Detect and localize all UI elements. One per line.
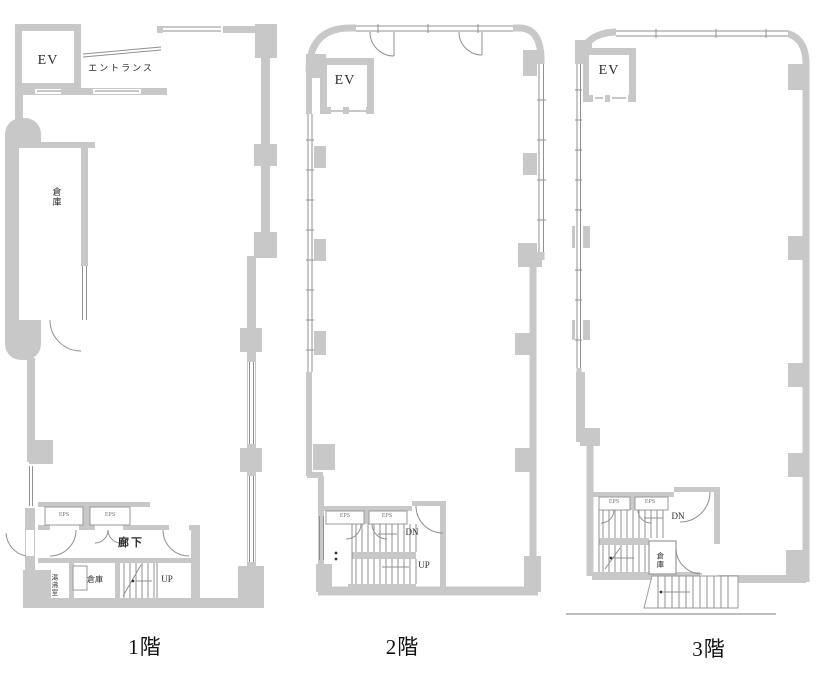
floor3-ev-label: EV — [591, 64, 627, 79]
floor1-up-label: UP — [154, 575, 180, 584]
floor3-storage-label: 倉庫 — [656, 546, 664, 574]
floor1-entrance-label: エントランス — [79, 64, 163, 73]
floor2-eps-right-label: EPS — [369, 513, 405, 519]
floorplan-sheet: EV エントランス 倉庫 EPS EPS 廊下 湯沸室 倉庫 UP — [0, 0, 834, 679]
floor1-plan: EV エントランス 倉庫 EPS EPS 廊下 湯沸室 倉庫 UP — [5, 10, 295, 622]
floor2-eps-left-label: EPS — [327, 513, 363, 519]
floor3-stair-dot — [610, 557, 613, 560]
floor2-plan: EV EPS EPS DN UP — [298, 10, 563, 622]
floor2-ev-label: EV — [327, 74, 363, 89]
floor1-storage-label: 倉庫 — [77, 576, 113, 584]
floor1-stair-dot — [132, 580, 135, 583]
floor2-stair-dots — [335, 552, 338, 561]
floor1-caption: 1階 — [60, 631, 230, 661]
floor1-eps-right-label: EPS — [92, 512, 128, 518]
floor3-plan: EV EPS EPS DN 倉庫 — [566, 10, 834, 626]
floor2-up-label: UP — [411, 561, 437, 570]
floor1-ev-label: EV — [30, 54, 66, 69]
floor3-caption: 3階 — [625, 633, 793, 663]
floor1-side-storage-label: 倉庫 — [51, 174, 60, 220]
floor3-eps-left-label: EPS — [597, 499, 631, 505]
floor2-caption: 2階 — [320, 631, 485, 661]
floor3-exterior-stairs — [644, 576, 738, 608]
floor1-drawing — [5, 10, 295, 622]
floor2-drawing — [298, 10, 563, 622]
floor3-dn-label: DN — [665, 512, 691, 521]
floor2-dn-label: DN — [399, 528, 425, 537]
floor3-drawing — [566, 10, 834, 626]
floor1-kitchenette-label: 湯沸室 — [49, 563, 56, 607]
floor3-eps-right-label: EPS — [633, 499, 667, 505]
floor1-eps-left-label: EPS — [47, 512, 81, 518]
floor1-corridor-label: 廊下 — [108, 538, 154, 550]
floor1-staircase — [123, 563, 157, 598]
floor1-openings — [19, 24, 255, 562]
